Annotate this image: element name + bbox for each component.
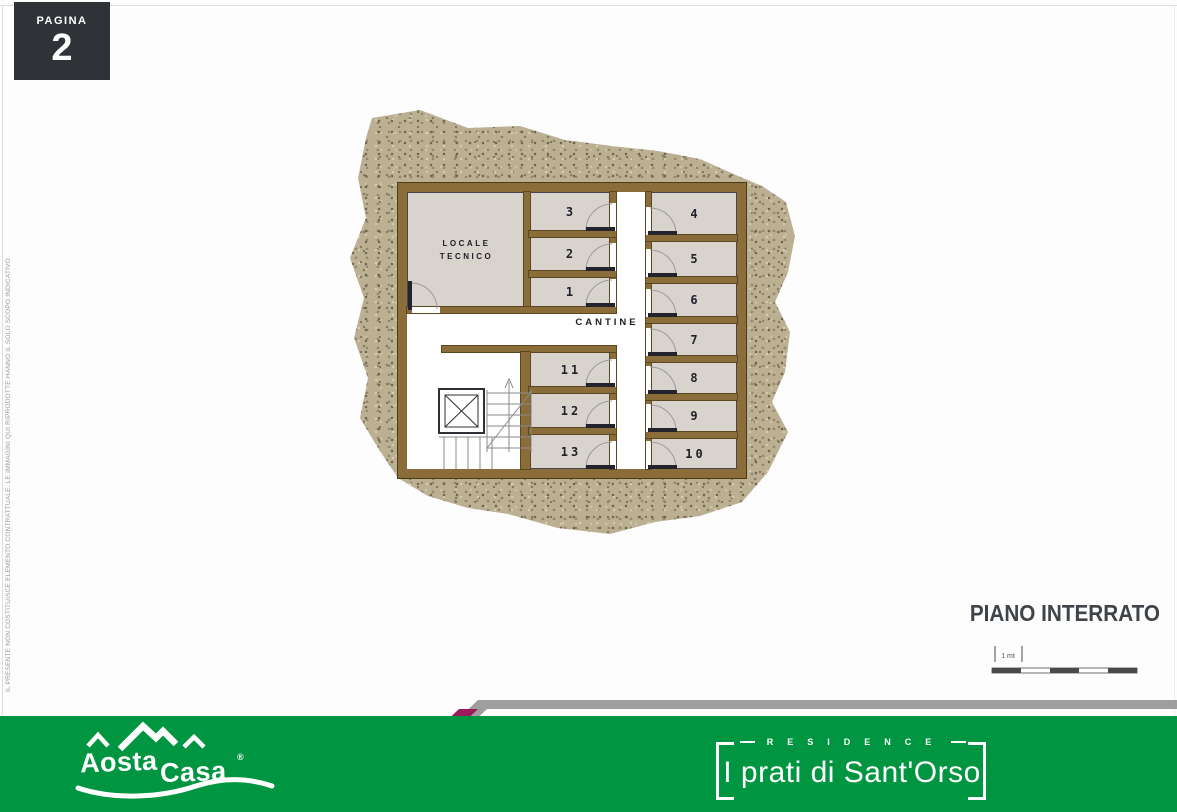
small-peak-right-icon: [184, 737, 204, 747]
brand-word-casa: Casa: [159, 756, 227, 789]
brochure-page: PAGINA 2 IL PRESENTE NON COSTITUISCE ELE…: [0, 0, 1177, 812]
residence-label-row: RESIDENCE: [740, 736, 966, 748]
registered-mark: ®: [237, 752, 244, 762]
rule-left: [740, 741, 755, 743]
elevator: [439, 389, 484, 433]
scale-bar: 1 mt: [985, 640, 1145, 680]
scale-label: 1 mt: [1001, 653, 1015, 660]
brand-word-aosta: Aosta: [79, 746, 158, 780]
residence-label: RESIDENCE: [761, 737, 946, 747]
rule-right: [951, 741, 966, 743]
small-peak-left-icon: [88, 735, 108, 746]
floor-title: PIANO INTERRATO: [953, 600, 1160, 627]
residence-name: I prati di Sant'Orso: [718, 756, 986, 790]
